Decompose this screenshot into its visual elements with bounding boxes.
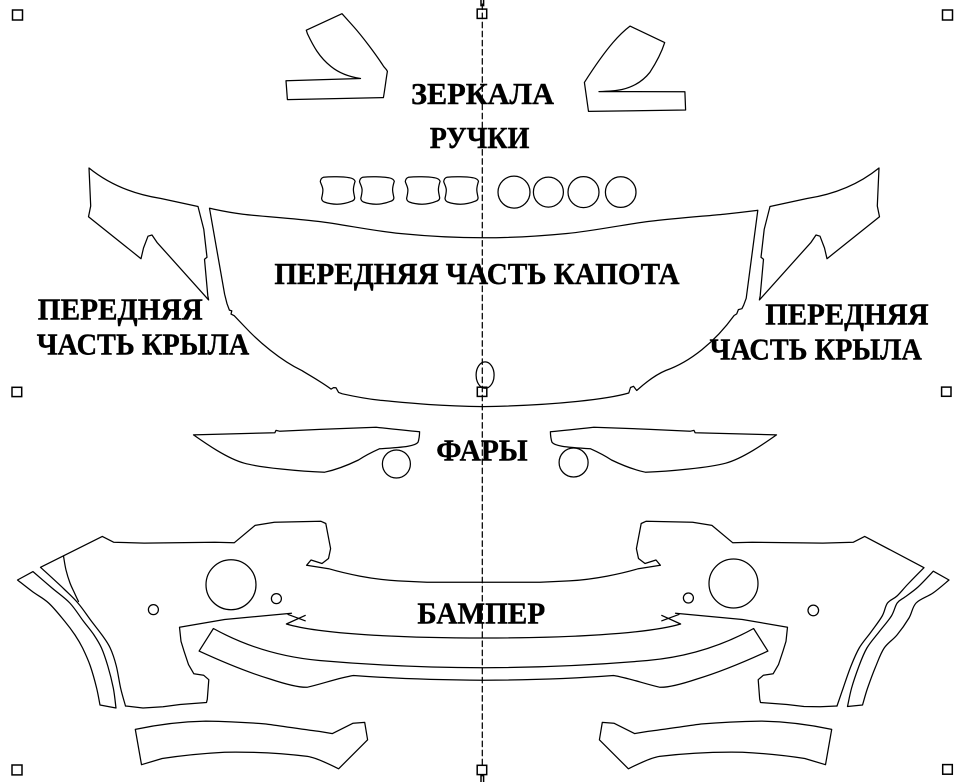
svg-text:ФАРЫ: ФАРЫ: [436, 432, 528, 467]
svg-text:ЧАСТЬ КРЫЛА: ЧАСТЬ КРЫЛА: [37, 327, 250, 362]
svg-text:ПЕРЕДНЯЯ: ПЕРЕДНЯЯ: [765, 297, 928, 332]
svg-text:ПЕРЕДНЯЯ: ПЕРЕДНЯЯ: [38, 292, 203, 327]
svg-text:ЗЕРКАЛА: ЗЕРКАЛА: [411, 76, 555, 111]
svg-text:ЧАСТЬ КРЫЛА: ЧАСТЬ КРЫЛА: [710, 331, 923, 366]
svg-text:БАМПЕР: БАМПЕР: [417, 596, 545, 631]
svg-text:ПЕРЕДНЯЯ ЧАСТЬ КАПОТА: ПЕРЕДНЯЯ ЧАСТЬ КАПОТА: [274, 256, 680, 291]
svg-text:РУЧКИ: РУЧКИ: [430, 120, 530, 155]
